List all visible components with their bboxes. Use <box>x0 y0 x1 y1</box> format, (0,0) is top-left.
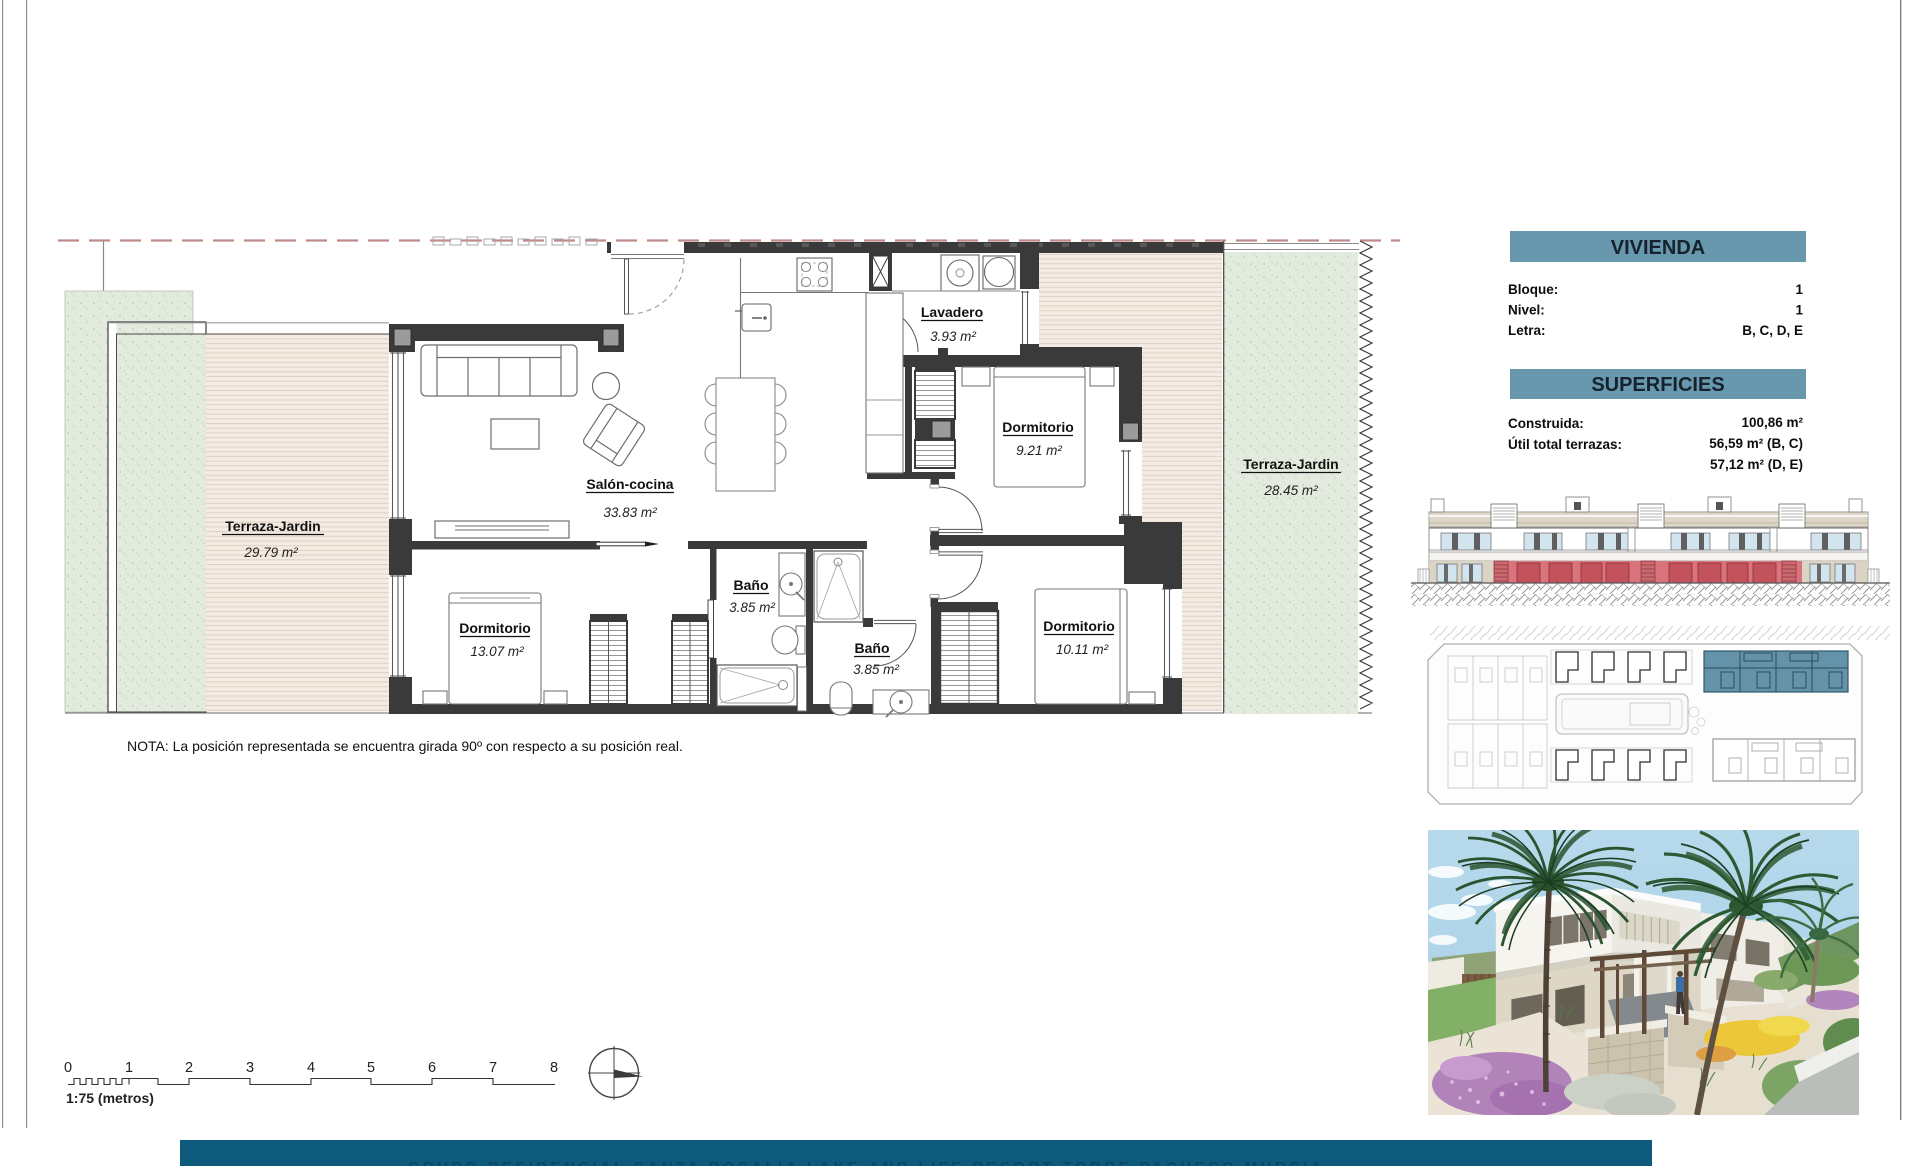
svg-text:Construida:: Construida: <box>1508 416 1584 431</box>
svg-text:Lavadero: Lavadero <box>921 304 983 320</box>
svg-text:9.21 m²: 9.21 m² <box>1016 443 1062 458</box>
svg-text:Bloque:: Bloque: <box>1508 282 1558 297</box>
svg-text:Dormitorio: Dormitorio <box>459 620 531 636</box>
svg-text:4: 4 <box>307 1060 315 1076</box>
svg-text:Terraza-Jardin: Terraza-Jardin <box>225 518 320 534</box>
svg-text:6: 6 <box>428 1060 436 1076</box>
svg-text:2: 2 <box>185 1060 193 1076</box>
svg-text:Nivel:: Nivel: <box>1508 303 1545 318</box>
svg-text:SUPERFICIES: SUPERFICIES <box>1591 374 1724 396</box>
svg-text:Baño: Baño <box>734 577 769 593</box>
svg-text:5: 5 <box>367 1060 375 1076</box>
svg-text:57,12 m² (D, E): 57,12 m² (D, E) <box>1710 457 1803 472</box>
svg-text:3.85 m²: 3.85 m² <box>729 600 775 615</box>
svg-text:29.79 m²: 29.79 m² <box>243 545 298 560</box>
svg-text:100,86 m²: 100,86 m² <box>1741 415 1803 430</box>
svg-text:Útil total terrazas:: Útil total terrazas: <box>1508 437 1622 452</box>
svg-text:NOTA: La posición representada: NOTA: La posición representada se encuen… <box>127 738 683 754</box>
svg-text:1: 1 <box>1795 303 1803 318</box>
svg-text:0: 0 <box>64 1060 72 1076</box>
svg-text:B, C, D, E: B, C, D, E <box>1742 323 1803 338</box>
svg-text:7: 7 <box>489 1060 497 1076</box>
svg-text:3: 3 <box>246 1060 254 1076</box>
svg-text:1:75 (metros): 1:75 (metros) <box>66 1090 154 1106</box>
svg-text:Terraza-Jardin: Terraza-Jardin <box>1243 456 1338 472</box>
svg-text:56,59 m² (B, C): 56,59 m² (B, C) <box>1709 436 1803 451</box>
svg-text:13.07 m²: 13.07 m² <box>470 644 524 659</box>
svg-text:28.45 m²: 28.45 m² <box>1263 483 1318 498</box>
svg-text:3.85 m²: 3.85 m² <box>853 662 899 677</box>
svg-text:33.83 m²: 33.83 m² <box>603 505 657 520</box>
svg-text:1: 1 <box>125 1060 133 1076</box>
svg-text:Dormitorio: Dormitorio <box>1002 419 1074 435</box>
svg-text:Salón-cocina: Salón-cocina <box>586 476 673 492</box>
svg-text:1: 1 <box>1795 282 1803 297</box>
svg-text:GRUPO RESIDENCIAL SANTA ROSALI: GRUPO RESIDENCIAL SANTA ROSALIA LAKE AND… <box>408 1159 1325 1166</box>
svg-text:8: 8 <box>550 1060 558 1076</box>
svg-text:Dormitorio: Dormitorio <box>1043 618 1115 634</box>
svg-text:3.93 m²: 3.93 m² <box>930 329 976 344</box>
svg-text:Letra:: Letra: <box>1508 323 1546 338</box>
svg-text:VIVIENDA: VIVIENDA <box>1611 237 1705 259</box>
svg-text:10.11 m²: 10.11 m² <box>1056 642 1109 657</box>
svg-text:Baño: Baño <box>855 640 890 656</box>
